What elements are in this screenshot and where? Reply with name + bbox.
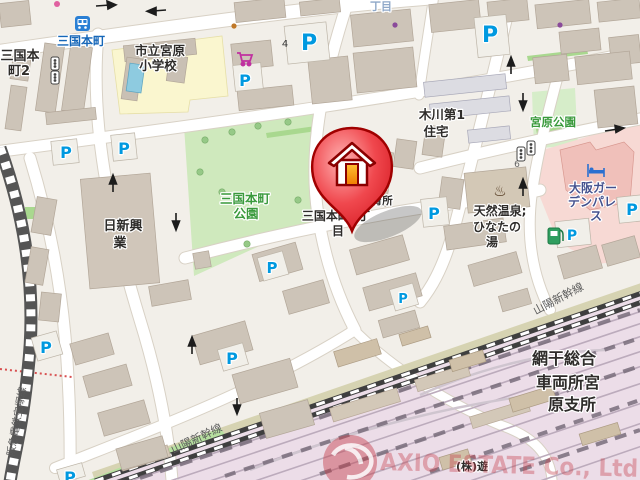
watermark-text: AXIO ESTATE Co., Ltd [380,448,639,480]
svg-text:P: P [626,200,638,219]
map-tiles[interactable]: 丁目 三国本町 三国本 町2 市立宮原 小学校 4 6 木川第1 住宅 宮原公園… [0,0,640,480]
onsen-label: ひなたの [473,220,521,234]
marker-address-label: 目 [332,224,344,238]
nisshin-label: 日新興 [103,218,142,234]
hotel-label: 大阪ガー [569,180,617,195]
depot-label: 車両所宮 [536,373,600,392]
svg-text:P: P [40,338,52,357]
school-label: 小学校 [138,58,177,73]
svg-text:P: P [239,71,251,90]
onsen-label: 天然温泉; [474,203,527,218]
house-number: 6 [514,160,520,170]
kigawa-housing-label: 木川第1 [418,107,465,122]
svg-text:P: P [60,143,72,162]
address-label: 三国本 [0,48,39,64]
house-number: 4 [282,39,288,50]
svg-text:P: P [482,23,498,48]
svg-text:P: P [301,31,317,56]
svg-text:P: P [428,204,440,223]
bus-stop-label: 三国本町 [57,33,105,48]
depot-label: 網干総合 [532,349,597,368]
svg-text:P: P [398,292,408,307]
depot-label: 原支所 [548,395,596,414]
mikuni-park-label: 公園 [233,206,258,221]
address-label: 町2 [8,64,30,79]
svg-text:P: P [226,349,238,368]
nisshin-label: 業 [112,235,127,251]
hotel-label: ス [590,209,602,223]
miyahara-park-label: 宮原公園 [530,115,576,129]
svg-text:P: P [267,259,278,277]
bus-stop-icon [75,16,90,31]
mikuni-park-label: 三国本町 [220,191,271,206]
map-canvas[interactable]: 丁目 三国本町 三国本 町2 市立宮原 小学校 4 6 木川第1 住宅 宮原公園… [0,0,640,480]
svg-text:P: P [64,468,76,480]
school-label: 市立宮原 [135,43,186,58]
hotel-label: デンパレ [568,194,616,209]
svg-text:P: P [567,228,577,244]
choume-label: 丁目 [370,0,392,13]
onsen-label: 湯 [486,234,498,249]
onsen-icon: ♨ [493,182,506,200]
svg-text:P: P [118,139,130,158]
kigawa-housing-label: 住宅 [423,124,449,139]
